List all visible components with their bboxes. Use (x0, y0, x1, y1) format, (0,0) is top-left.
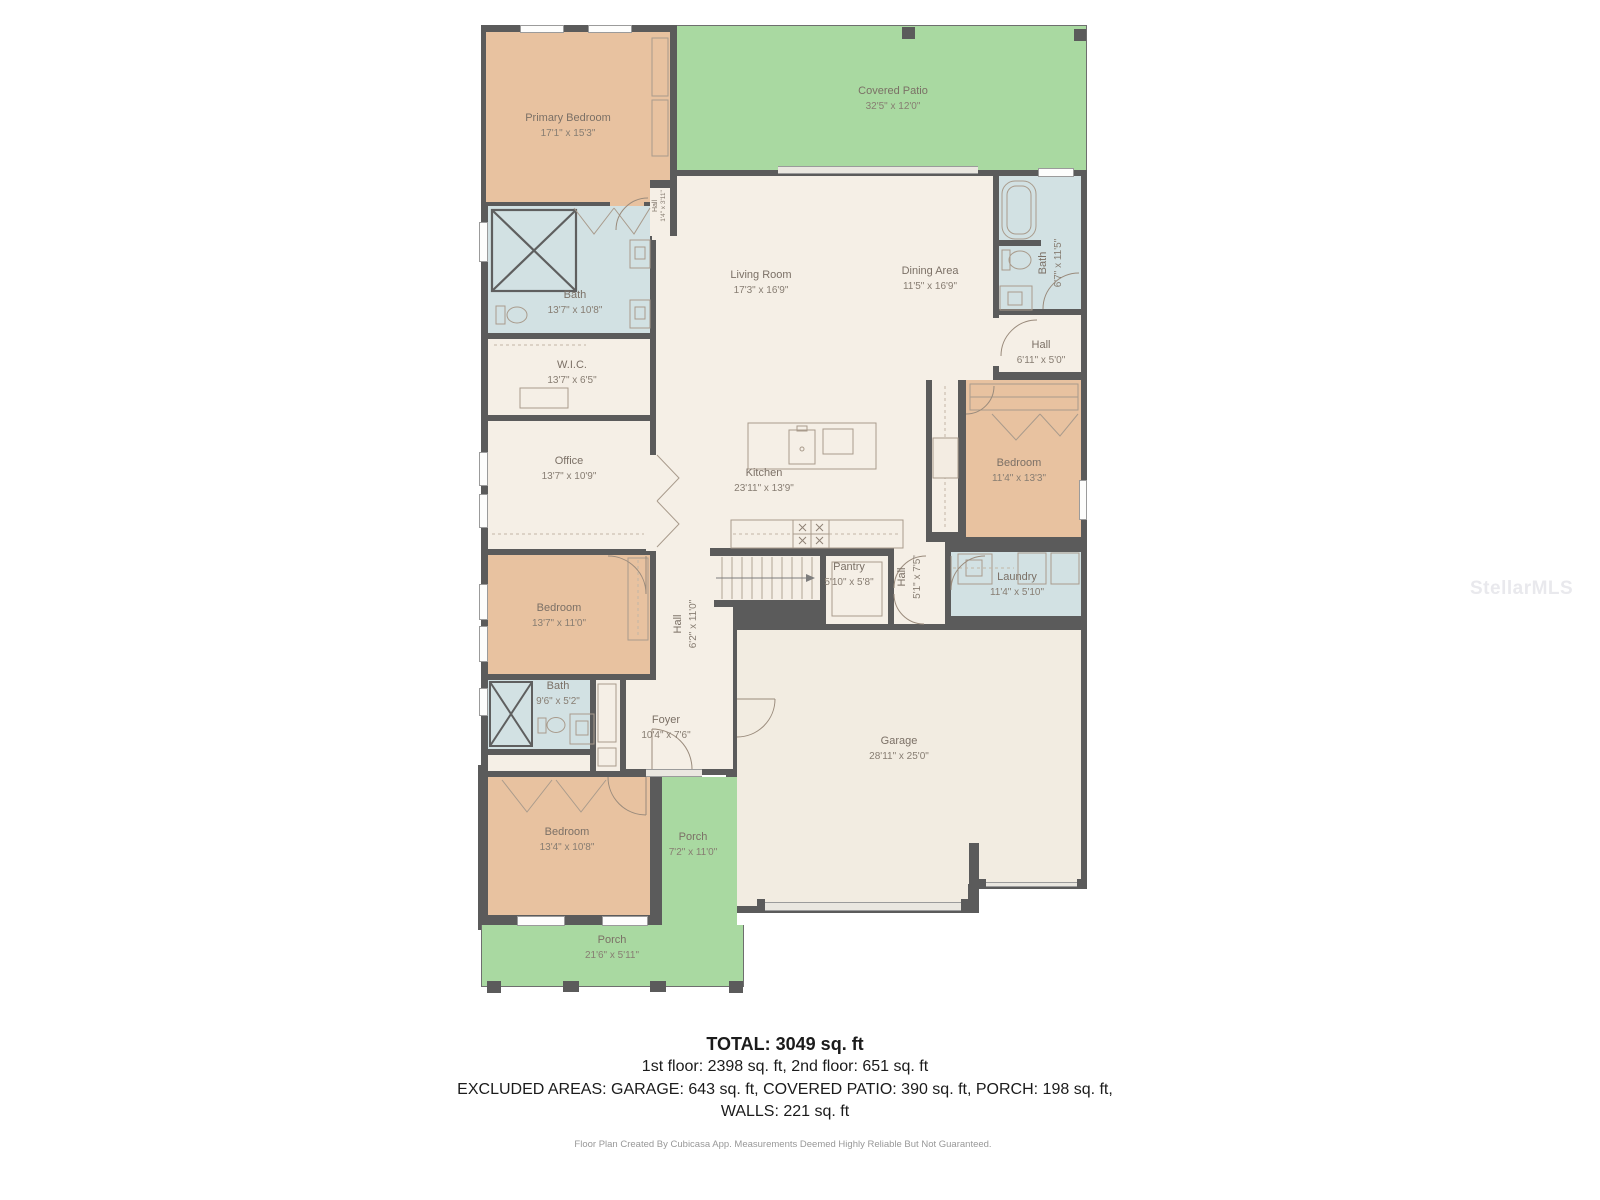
window (479, 688, 488, 716)
wall-segment (969, 843, 979, 910)
room-label-wic: W.I.C.13'7" x 6'5" (547, 358, 596, 388)
room-label-bath2: Bath9'6" x 5'2" (536, 679, 580, 709)
room-label-covered-patio: Covered Patio32'5" x 12'0" (858, 84, 928, 114)
wall-segment (710, 548, 905, 556)
garage-door-post (757, 899, 765, 913)
room-label-primary-bath: Bath13'7" x 10'8" (548, 288, 603, 318)
room-label-kitchen: Kitchen23'11" x 13'9" (734, 466, 794, 496)
room-label-living-room: Living Room17'3" x 16'9" (730, 268, 791, 298)
room-label-hall4: Hall6'2" x 11'0" (671, 600, 701, 649)
kitchen-cabinet-strip (932, 380, 958, 532)
hall5-area (488, 755, 590, 771)
garage-side-post (979, 879, 986, 889)
garage-door-opening (762, 902, 964, 911)
wall-segment (650, 180, 670, 188)
wall-segment (714, 600, 826, 607)
stairs-area (714, 556, 820, 600)
primary-closet-strip (650, 32, 670, 180)
room-label-primary-bedroom: Primary Bedroom17'1" x 15'3" (525, 111, 611, 141)
patio-sliding-door (778, 166, 978, 174)
porch-post (563, 981, 579, 992)
hall2-opening (989, 318, 1003, 366)
room-label-laundry: Laundry11'4" x 5'10" (990, 570, 1044, 600)
porch-post (729, 981, 743, 993)
room-label-porch-front: Porch21'6" x 5'11" (585, 933, 639, 963)
window (520, 25, 564, 33)
office-door-opening (646, 455, 658, 551)
window (479, 494, 488, 528)
window (479, 626, 488, 662)
floor-areas-text: 1st floor: 2398 sq. ft, 2nd floor: 651 s… (642, 1058, 928, 1076)
window (602, 916, 648, 926)
patio-post (902, 27, 915, 39)
window (479, 584, 488, 620)
porch-post (487, 981, 501, 993)
room-label-bedroom4: Bedroom11'4" x 13'3" (992, 456, 1046, 486)
window (479, 452, 488, 486)
window (1038, 168, 1074, 177)
porch-post (650, 981, 666, 992)
window (588, 25, 632, 33)
room-label-hall2: Hall6'11" x 5'0" (1017, 338, 1066, 368)
wall-segment (999, 240, 1041, 246)
stellar-mls-watermark: StellarMLS (1470, 578, 1573, 600)
office-area (488, 421, 650, 549)
room-label-bedroom2: Bedroom13'7" x 11'0" (532, 601, 586, 631)
room-label-hall3: Hall5'1" x 7'5" (895, 555, 925, 599)
patio-post (1074, 29, 1086, 41)
room-label-hall-a: Hall1'4" x 3'11" (652, 190, 668, 222)
room-label-porch-side: Porch7'2" x 11'0" (669, 830, 718, 860)
excluded-areas-text: EXCLUDED AREAS: GARAGE: 643 sq. ft, COVE… (457, 1081, 1113, 1099)
room-label-office: Office13'7" x 10'9" (542, 454, 597, 484)
room-label-garage: Garage28'11" x 25'0" (869, 734, 929, 764)
window (1079, 480, 1087, 520)
hall-a-opening (652, 230, 668, 240)
room-label-bedroom3: Bedroom13'4" x 10'8" (540, 825, 595, 855)
window (517, 916, 565, 926)
room-label-bath3: Bath6'7" x 11'5" (1036, 239, 1066, 288)
garage-door-post (961, 899, 969, 913)
walls-area-text: WALLS: 221 sq. ft (721, 1103, 849, 1121)
room-label-dining-area: Dining Area11'5" x 16'9" (902, 264, 959, 294)
total-area-text: TOTAL: 3049 sq. ft (706, 1034, 863, 1055)
window (479, 222, 488, 262)
front-door-opening (646, 769, 702, 777)
cubicasa-credit-text: Floor Plan Created By Cubicasa App. Meas… (574, 1139, 991, 1150)
room-label-foyer: Foyer10'4" x 7'6" (641, 713, 690, 743)
garage-side-post (1077, 879, 1084, 889)
garage-side-opening (983, 882, 1081, 887)
room-label-pantry: Pantry5'10" x 5'8" (824, 560, 873, 590)
floor-plan-canvas: Primary Bedroom17'1" x 15'3" Covered Pat… (0, 0, 1600, 1200)
bath2-closet-strip (596, 680, 620, 771)
